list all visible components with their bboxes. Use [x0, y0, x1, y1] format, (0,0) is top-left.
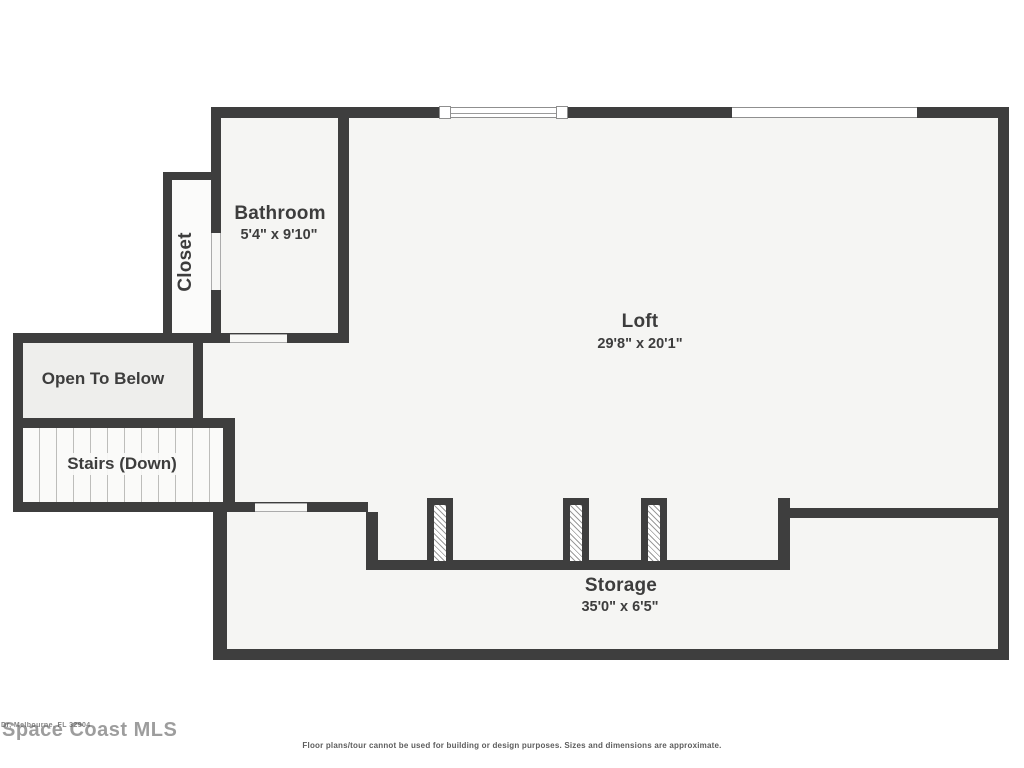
window-pane-line [451, 113, 556, 114]
loft-dimensions: 29'8" x 20'1" [597, 336, 682, 352]
open-to-below-label: Open To Below [42, 369, 164, 389]
wall [338, 107, 349, 343]
stairs-label: Stairs (Down) [61, 453, 183, 475]
wall [13, 333, 213, 343]
wall [788, 508, 1000, 518]
door-opening [230, 334, 287, 343]
wall [213, 502, 227, 660]
loft-label: Loft [622, 311, 659, 333]
support-post [427, 498, 453, 568]
window-endcap [439, 106, 451, 119]
closet-label: Closet [175, 232, 197, 291]
storage-dimensions: 35'0" x 6'5" [581, 599, 658, 615]
wall [213, 649, 1009, 660]
wall [193, 343, 203, 427]
wall [13, 418, 235, 428]
footer-disclaimer: Floor plans/tour cannot be used for buil… [302, 741, 721, 750]
wall [163, 172, 172, 343]
window-endcap [556, 106, 568, 119]
door-opening [211, 233, 221, 290]
wall [223, 418, 235, 512]
floor-plan: Bathroom 5'4" x 9'10" Closet Loft 29'8" … [0, 0, 1024, 768]
wall [211, 107, 221, 343]
storage-label: Storage [585, 575, 657, 597]
bathroom-label: Bathroom [234, 203, 325, 225]
watermark-address: Dr, Melbourne, FL 32904 [1, 722, 91, 729]
window-symbol [732, 107, 917, 118]
support-post [563, 498, 589, 568]
door-opening [255, 503, 307, 512]
bathroom-dimensions: 5'4" x 9'10" [240, 227, 317, 243]
wall [13, 502, 368, 512]
support-post [641, 498, 667, 568]
wall [998, 107, 1009, 660]
window-symbol [451, 107, 556, 118]
